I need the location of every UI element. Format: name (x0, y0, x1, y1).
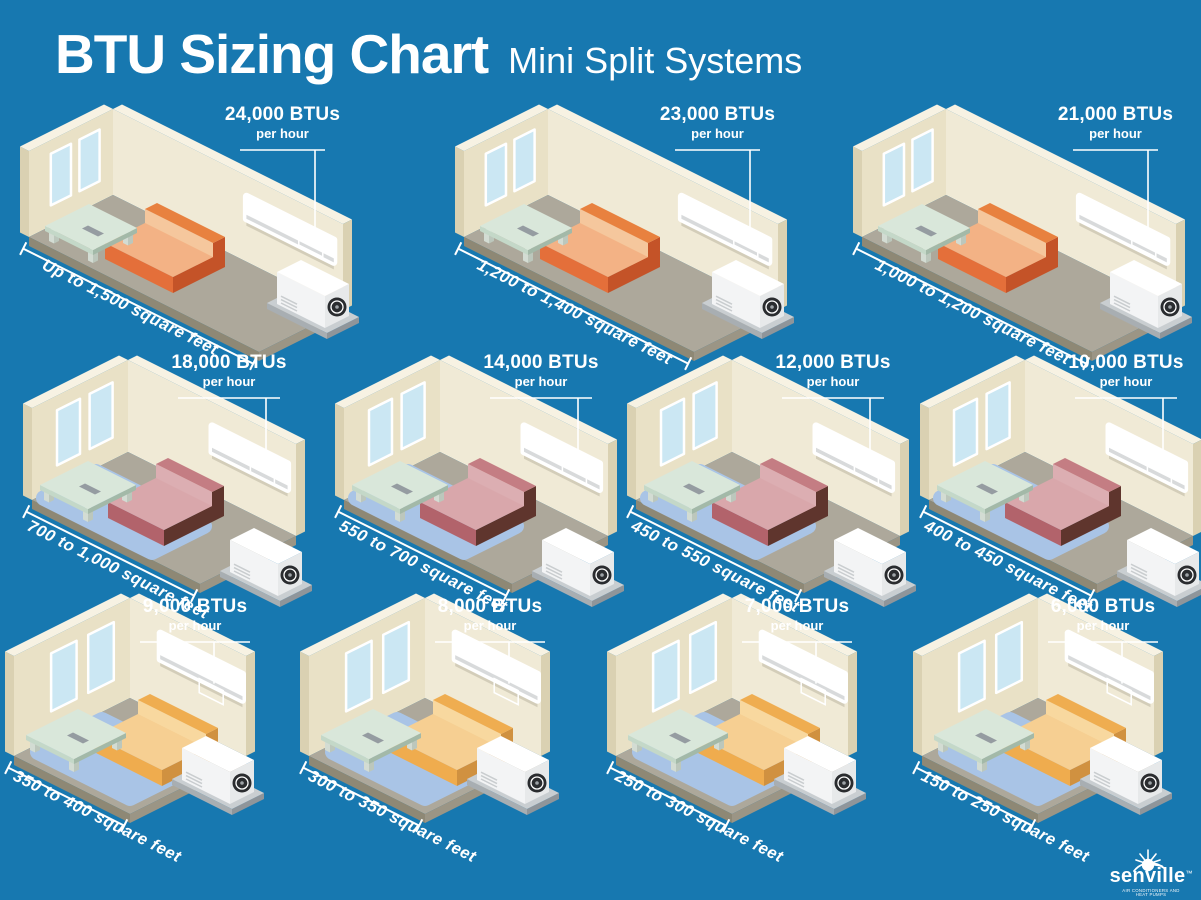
btu-label: 8,000 BTUsper hour (395, 596, 585, 634)
btu-label: 7,000 BTUsper hour (702, 596, 892, 634)
btu-per-hour-label: per hour (395, 619, 585, 634)
btu-value-label: 10,000 BTUs (1031, 352, 1201, 374)
btu-label: 23,000 BTUsper hour (623, 104, 813, 142)
page-title: BTU Sizing Chart (55, 22, 488, 86)
btu-label: 24,000 BTUsper hour (188, 104, 378, 142)
btu-value-label: 23,000 BTUs (623, 104, 813, 126)
btu-value-label: 8,000 BTUs (395, 596, 585, 618)
senville-logo: senville™ AIR CONDITIONERS AND HEAT PUMP… (1106, 848, 1196, 900)
btu-per-hour-label: per hour (188, 127, 378, 142)
btu-per-hour-label: per hour (134, 375, 324, 390)
btu-value-label: 7,000 BTUs (702, 596, 892, 618)
room-illustration (10, 598, 260, 900)
btu-per-hour-label: per hour (1031, 375, 1201, 390)
room-illustration (612, 598, 862, 900)
btu-label: 18,000 BTUsper hour (134, 352, 324, 390)
btu-per-hour-label: per hour (446, 375, 636, 390)
btu-per-hour-label: per hour (623, 127, 813, 142)
btu-per-hour-label: per hour (1021, 127, 1201, 142)
room-card: 9,000 BTUsper hour350 to 400 square feet (10, 598, 260, 900)
btu-value-label: 14,000 BTUs (446, 352, 636, 374)
btu-value-label: 24,000 BTUs (188, 104, 378, 126)
room-card: 7,000 BTUsper hour250 to 300 square feet (612, 598, 862, 900)
btu-value-label: 12,000 BTUs (738, 352, 928, 374)
btu-per-hour-label: per hour (702, 619, 892, 634)
btu-label: 10,000 BTUsper hour (1031, 352, 1201, 390)
room-card: 8,000 BTUsper hour300 to 350 square feet (305, 598, 555, 900)
btu-label: 21,000 BTUsper hour (1021, 104, 1201, 142)
btu-per-hour-label: per hour (100, 619, 290, 634)
btu-value-label: 9,000 BTUs (100, 596, 290, 618)
btu-value-label: 21,000 BTUs (1021, 104, 1201, 126)
btu-label: 6,000 BTUsper hour (1008, 596, 1198, 634)
btu-value-label: 6,000 BTUs (1008, 596, 1198, 618)
logo-tagline: AIR CONDITIONERS AND HEAT PUMPS (1119, 889, 1184, 898)
btu-per-hour-label: per hour (1008, 619, 1198, 634)
page-header: BTU Sizing Chart Mini Split Systems (55, 22, 802, 86)
btu-per-hour-label: per hour (738, 375, 928, 390)
btu-value-label: 18,000 BTUs (134, 352, 324, 374)
room-illustration (305, 598, 555, 900)
btu-label: 12,000 BTUsper hour (738, 352, 928, 390)
logo-trademark: ™ (1185, 871, 1192, 878)
btu-sizing-infographic: BTU Sizing Chart Mini Split Systems 24,0… (0, 0, 1201, 900)
btu-label: 14,000 BTUsper hour (446, 352, 636, 390)
btu-label: 9,000 BTUsper hour (100, 596, 290, 634)
logo-wordmark: senville (1110, 865, 1186, 887)
page-subtitle: Mini Split Systems (508, 40, 802, 82)
